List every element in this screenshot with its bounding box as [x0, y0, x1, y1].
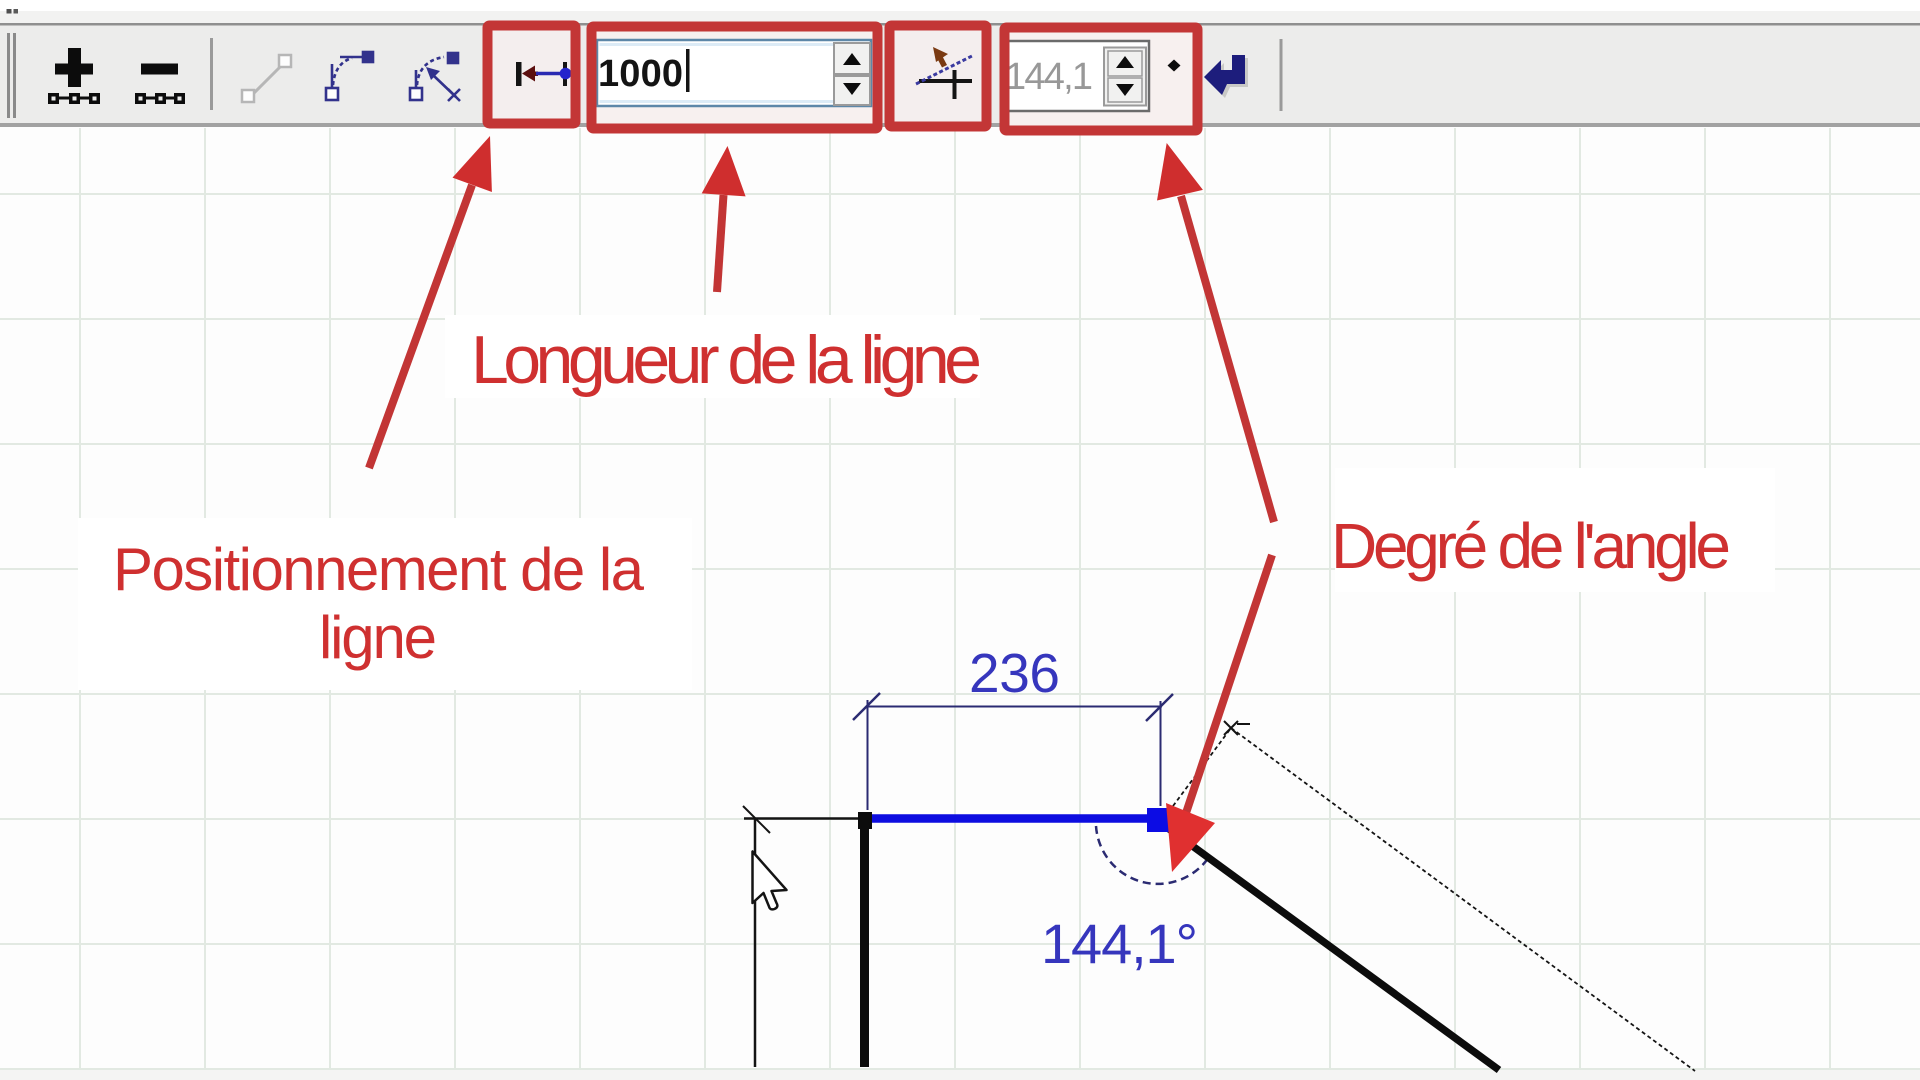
svg-text:Degré de l'angle: Degré de l'angle [1331, 510, 1731, 582]
svg-text:144,1: 144,1 [1005, 56, 1093, 98]
svg-text:144,1°: 144,1° [1041, 912, 1198, 975]
svg-text:ligne: ligne [319, 604, 437, 671]
svg-text:Longueur de la ligne: Longueur de la ligne [471, 322, 982, 398]
svg-text:1000: 1000 [598, 53, 683, 95]
svg-text:Positionnement de la: Positionnement de la [113, 536, 645, 603]
svg-text:236: 236 [969, 642, 1060, 704]
